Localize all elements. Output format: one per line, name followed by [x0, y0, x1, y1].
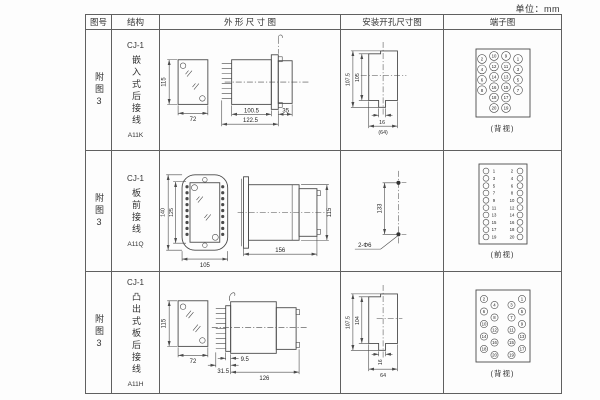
header-outline: 外 形 尺 寸 图	[160, 15, 341, 30]
series-label: CJ-1	[127, 174, 144, 183]
terminal-pins-comb	[222, 64, 232, 99]
catalog-page: 单位：mm 图号 结构 外 形 尺 寸 图 安装开孔尺寸图 端子图 附图3 CJ…	[0, 0, 600, 400]
structure-cell: CJ-1 板前接线 A11Q	[112, 151, 160, 272]
side-view-drawing: 9.5 31.5 126	[208, 292, 307, 381]
dim-label: 104	[355, 316, 361, 325]
terminal-pin-number: 6	[510, 183, 513, 188]
dim-label: 115	[162, 77, 168, 87]
dim-label: 105	[200, 263, 211, 269]
terminal-pin-number: 13	[491, 213, 496, 218]
view-label: (前视)	[491, 249, 515, 260]
header-structure: 结构	[112, 15, 160, 30]
terminal-pin-number: 17	[519, 346, 524, 351]
dim-label: 64	[380, 373, 386, 379]
front-view-drawing: 115 72	[162, 300, 208, 364]
terminal-diagram-a11h: 26101418 48121620 37111519 1591317	[473, 287, 533, 365]
glass-hatch-mark	[204, 214, 210, 220]
install-drawing-a11k: 107.5 105 16 (64)	[341, 30, 443, 150]
terminal-pin-column: 26101418	[480, 295, 487, 352]
install-drawing-cell: 107.5 104 16 64	[341, 272, 444, 393]
terminal-pin-number: 7	[516, 88, 519, 93]
dim-label: 107.5	[345, 73, 351, 86]
structure-label: 凸出式板后接线	[131, 292, 140, 376]
outline-drawing-cell: 115 72 100.5	[160, 30, 341, 151]
terminal-pin-number: 6	[482, 309, 485, 314]
header-install: 安装开孔尺寸图	[341, 15, 444, 30]
terminal-pin-number: 19	[503, 106, 508, 111]
terminal-pin	[517, 212, 523, 218]
structure-cell: CJ-1 凸出式板后接线 A11H	[112, 272, 160, 393]
terminal-cell: 26101418 48121620 37111519 1591317 (背视)	[444, 272, 561, 393]
mounting-hole	[396, 181, 400, 185]
install-drawing-a11h: 107.5 104 16 64	[341, 273, 443, 393]
terminal-pin	[483, 212, 489, 218]
terminal-pin-number: 5	[516, 77, 519, 82]
series-label: CJ-1	[127, 278, 144, 287]
terminal-pin-number: 16	[492, 340, 497, 345]
terminal-pin	[517, 219, 523, 225]
terminal-pin-number: 13	[503, 74, 508, 79]
terminal-pin	[483, 175, 489, 181]
fig-no-cell: 附图3	[86, 272, 112, 393]
outline-drawing-a11q: 140 125 105	[160, 151, 340, 271]
terminal-pin-number: 4	[493, 302, 496, 307]
header-fig-no: 图号	[86, 15, 112, 30]
glass-hatch-mark	[196, 197, 202, 203]
terminal-pin-column: 1591317	[518, 295, 525, 352]
terminal-pin	[517, 234, 523, 240]
terminal-pin-number: 16	[491, 85, 496, 90]
terminal-pin	[517, 190, 523, 196]
terminal-pin-number: 3	[492, 176, 495, 181]
header-terminal: 端子图	[444, 15, 561, 30]
dim-label: 72	[190, 117, 197, 123]
terminal-pin-number: 19	[509, 352, 514, 357]
terminal-pin-number: 5	[520, 309, 523, 314]
fig-no-label: 附图3	[94, 314, 103, 351]
terminal-pin-number: 16	[509, 220, 514, 225]
terminal-pin-number: 4	[480, 67, 483, 72]
fig-no-cell: 附图3	[86, 30, 112, 151]
structure-label: 嵌入式后接线	[131, 55, 140, 127]
outline-drawing-a11h: 115 72 9.5	[160, 273, 340, 393]
mounting-holes-drawing: 133 2-Φ6	[355, 171, 406, 249]
terminal-pin-number: 6	[480, 77, 483, 82]
outline-drawing-cell: 115 72 9.5	[160, 272, 341, 393]
install-drawing-a11q: 133 2-Φ6	[341, 151, 443, 271]
side-view-drawing: 100.5 35 122.5	[222, 35, 309, 126]
dim-label: 31.5	[217, 369, 229, 375]
terminal-pin-number: 11	[503, 64, 508, 69]
terminal-pin-number: 20	[509, 235, 514, 240]
terminal-pin	[517, 205, 523, 211]
terminal-pin-number: 5	[492, 183, 495, 188]
terminal-pin-column: 2468	[477, 55, 486, 95]
terminal-pin-number: 18	[491, 95, 496, 100]
terminal-pin-number: 2	[510, 169, 513, 174]
dim-label: 126	[259, 376, 270, 382]
dim-label: 2-Φ6	[358, 243, 372, 249]
terminal-pin-number: 3	[516, 67, 519, 72]
dim-label: 100.5	[244, 108, 260, 114]
dim-label: 72	[190, 359, 197, 365]
terminal-pin-column: 91113151719	[501, 52, 510, 113]
terminal-pin-number: 12	[491, 64, 496, 69]
terminal-pin	[517, 175, 523, 181]
terminal-pin-column: 48121620	[490, 301, 497, 358]
glass-hatch-mark	[192, 83, 198, 89]
dim-label: 156	[275, 248, 286, 254]
outline-drawing-cell: 140 125 105	[160, 151, 341, 272]
dim-label: 115	[327, 207, 333, 217]
terminal-pin	[517, 183, 523, 189]
terminal-pin-number: 18	[481, 346, 486, 351]
install-drawing-cell: 133 2-Φ6	[341, 151, 444, 272]
panel-cutout-drawing: 107.5 104 16 64	[345, 284, 402, 378]
model-label: A11H	[128, 381, 144, 388]
terminal-pin-number: 15	[509, 340, 514, 345]
terminal-pin-number: 8	[480, 88, 483, 93]
view-label: (背视)	[491, 123, 515, 134]
front-view-drawing: 140 125 105	[161, 175, 228, 269]
glass-hatch-mark	[193, 324, 200, 331]
dim-label: 107.5	[345, 315, 351, 328]
terminal-pin-number: 14	[491, 74, 496, 79]
glass-hatch-mark	[186, 71, 192, 77]
dim-label: (64)	[378, 130, 388, 136]
terminal-pin-number: 14	[481, 334, 486, 339]
terminal-pin	[483, 190, 489, 196]
terminal-pin-number: 4	[510, 176, 513, 181]
dim-label: 16	[379, 120, 385, 126]
terminal-pin-number: 7	[492, 191, 495, 196]
front-view-drawing: 115 72	[162, 60, 208, 123]
terminal-pin-number: 15	[503, 85, 508, 90]
terminal-pin	[517, 197, 523, 203]
terminal-pin-column: 135791113151719	[483, 168, 497, 240]
dim-label: 122.5	[243, 118, 259, 124]
terminal-pin-number: 11	[509, 327, 514, 332]
terminal-pin-number: 10	[509, 198, 514, 203]
fig-no-cell: 附图3	[86, 151, 112, 272]
terminal-pin	[517, 227, 523, 233]
terminal-pin-number: 14	[509, 213, 514, 218]
terminal-pin-number: 19	[491, 235, 496, 240]
dimension-table: 图号 结构 外 形 尺 寸 图 安装开孔尺寸图 端子图 附图3 CJ-1 嵌入式…	[85, 14, 562, 394]
terminal-pin-number: 10	[491, 54, 496, 59]
panel-cutout-drawing: 107.5 105 16 (64)	[345, 42, 406, 136]
terminal-pin	[517, 168, 523, 174]
terminal-diagram-a11k: 2468 101214161820 91113151719 1357	[473, 46, 533, 120]
terminal-pin-number: 20	[491, 106, 496, 111]
install-drawing-cell: 107.5 105 16 (64)	[341, 30, 444, 151]
dim-label: 115	[162, 318, 168, 328]
terminal-pin-number: 9	[492, 198, 495, 203]
structure-cell: CJ-1 嵌入式后接线 A11K	[112, 30, 160, 151]
terminal-pin-number: 8	[510, 191, 513, 196]
mounting-hole	[396, 232, 400, 236]
model-label: A11K	[128, 132, 143, 139]
terminal-pin-number: 17	[491, 227, 496, 232]
structure-label: 板前接线	[131, 188, 140, 236]
terminal-pin-number: 3	[510, 302, 513, 307]
dim-label: 133	[378, 203, 384, 214]
terminal-cell: 2468 101214161820 91113151719 1357 (背视)	[444, 30, 561, 151]
view-label: (背视)	[491, 368, 515, 379]
terminal-pin-number: 1	[492, 169, 495, 174]
dim-label: 9.5	[241, 356, 250, 362]
terminal-diagram-a11q: 135791113151719 2468101214161820	[477, 162, 529, 246]
fig-no-label: 附图3	[94, 193, 103, 230]
outline-drawing-a11k: 115 72 100.5	[160, 30, 340, 150]
terminal-cell: 135791113151719 2468101214161820 (前视)	[444, 151, 561, 272]
model-label: A11Q	[127, 241, 143, 248]
terminal-pin	[483, 219, 489, 225]
terminal-pin-column: 1357	[513, 55, 522, 95]
side-view-drawing: 156 115	[238, 177, 333, 256]
terminal-pin-column: 2468101214161820	[509, 168, 522, 240]
dim-label: 125	[169, 208, 175, 217]
terminal-pin	[483, 227, 489, 233]
terminal-pin	[483, 197, 489, 203]
terminal-pin-number: 10	[481, 321, 486, 326]
terminal-pin-number: 12	[509, 205, 514, 210]
glass-hatch-mark	[186, 310, 193, 317]
terminal-pin-number: 2	[482, 296, 485, 301]
terminal-pin-number: 18	[509, 227, 514, 232]
terminal-pin-number: 9	[504, 54, 507, 59]
terminal-pin	[483, 183, 489, 189]
terminal-pin-number: 7	[510, 315, 513, 320]
terminal-pin-number: 11	[491, 205, 496, 210]
terminal-pins-comb	[216, 308, 226, 348]
terminal-pin	[483, 168, 489, 174]
dim-label: 105	[355, 73, 361, 82]
terminal-pin-number: 17	[503, 95, 508, 100]
terminal-pin-number: 12	[492, 327, 497, 332]
wire-hook	[229, 292, 235, 300]
terminal-pin-number: 20	[492, 352, 497, 357]
dim-label: 16	[378, 359, 384, 365]
terminal-pin-number: 1	[520, 296, 523, 301]
terminal-pin-number: 9	[520, 321, 523, 326]
terminal-pin-column: 37111519	[507, 301, 514, 358]
fig-no-label: 附图3	[94, 72, 103, 109]
terminal-pin-number: 1	[516, 57, 519, 62]
series-label: CJ-1	[127, 41, 144, 50]
dim-label: 140	[161, 208, 167, 217]
terminal-pin-number: 15	[491, 220, 496, 225]
terminal-pin-column: 101214161820	[489, 52, 498, 113]
terminal-pin	[483, 234, 489, 240]
terminal-pin-number: 8	[493, 315, 496, 320]
terminal-pin	[483, 205, 489, 211]
terminal-pin-number: 2	[480, 57, 483, 62]
dim-label: 35	[282, 108, 289, 114]
terminal-pin-number: 13	[519, 334, 524, 339]
